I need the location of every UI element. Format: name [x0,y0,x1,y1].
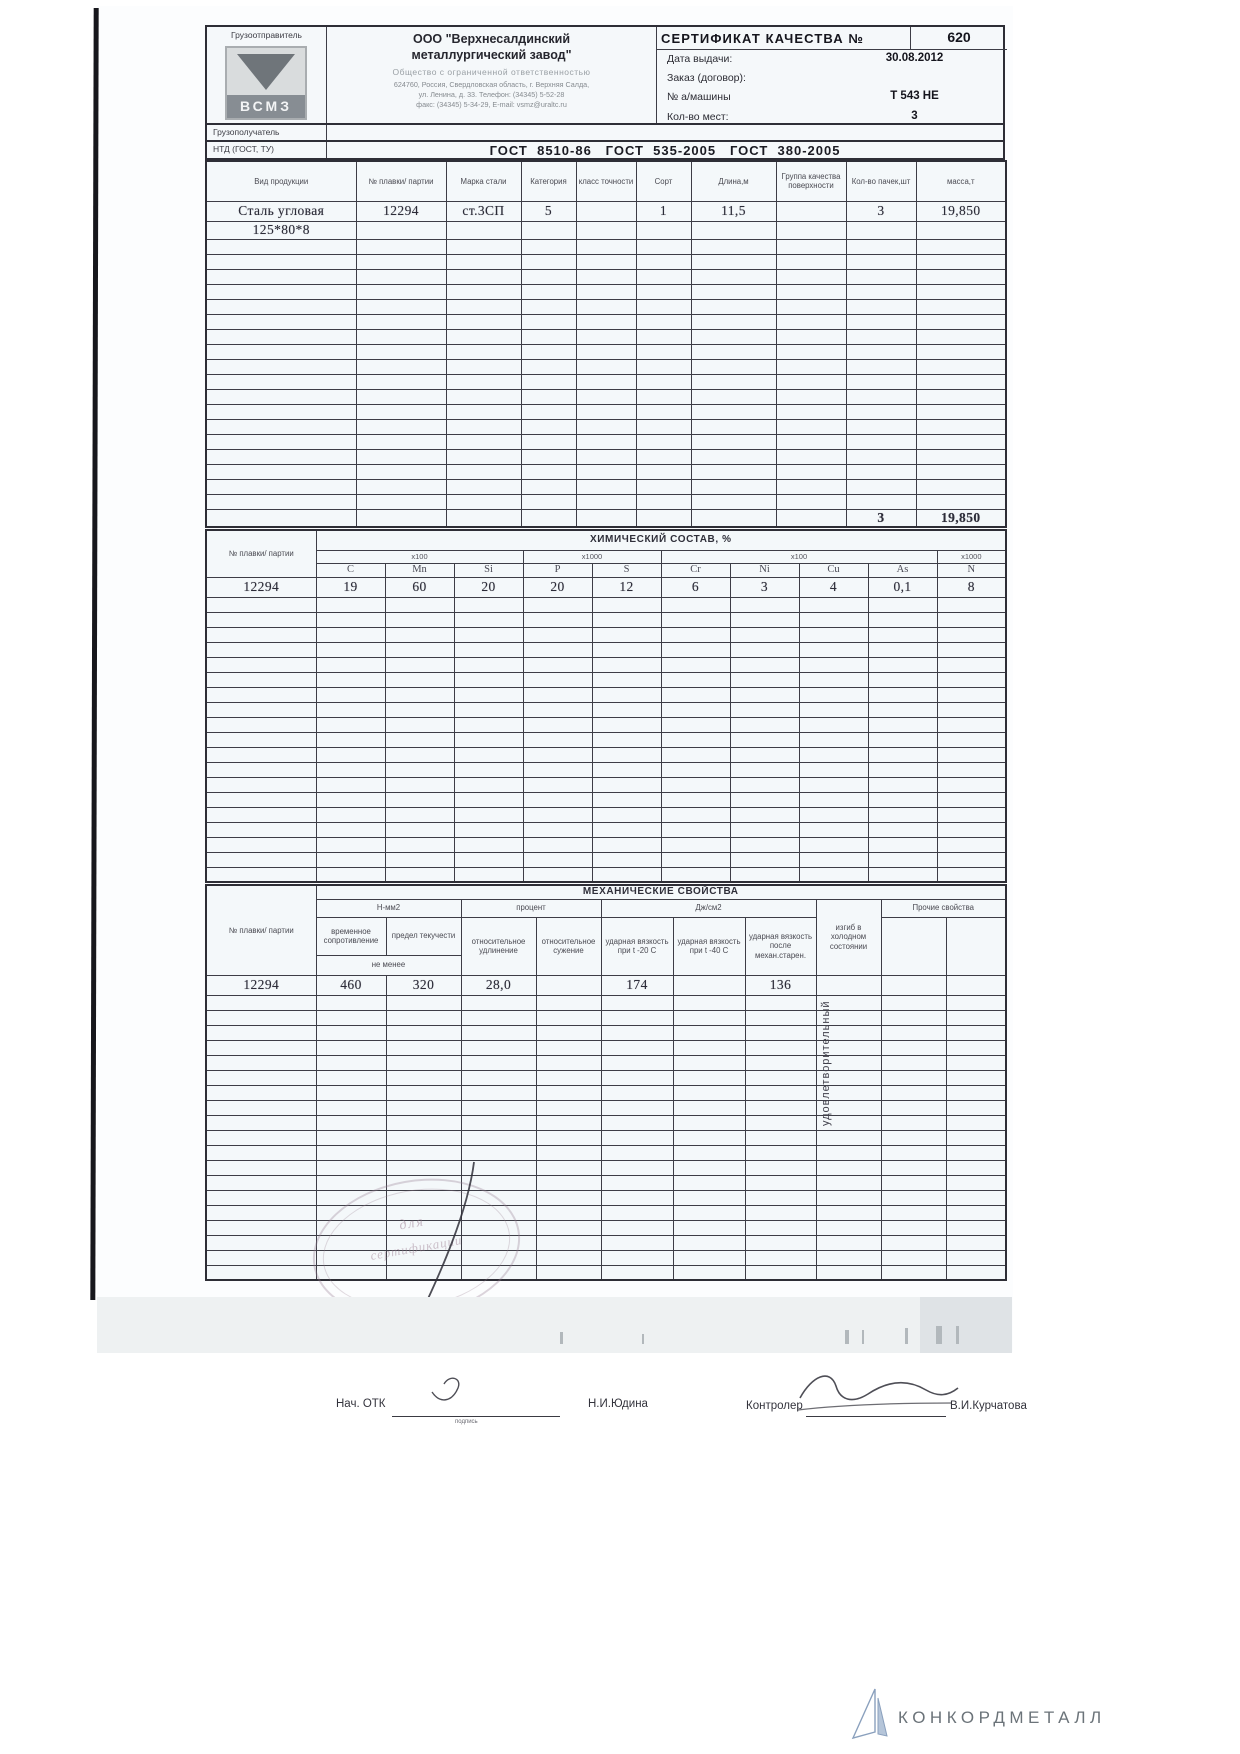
field-label: Дата выдачи: [667,53,732,65]
table-cell [316,777,385,792]
table-cell [446,434,521,449]
table-cell [385,822,454,837]
table-cell [776,419,846,434]
empty-row [206,702,1006,717]
table-cell [385,627,454,642]
table-cell [446,509,521,527]
chem-scale-row: х100 х1000 х100 х1000 [206,550,1006,563]
table-cell [673,1145,745,1160]
table-cell [316,642,385,657]
table-cell [521,269,576,284]
table-cell [946,1070,1006,1085]
empty-row [206,822,1006,837]
empty-row [206,672,1006,687]
table-cell: 12294 [356,201,446,221]
table-cell [521,404,576,419]
table-cell [601,1220,673,1235]
table-cell [937,597,1006,612]
table-cell [536,1205,601,1220]
table-cell [881,1175,946,1190]
table-cell [592,867,661,882]
table-cell [730,762,799,777]
table-cell [592,627,661,642]
not-less-than-label: не менее [316,955,461,975]
table-cell [868,792,937,807]
table-cell [937,807,1006,822]
chem-col-heat: № плавки/ партии [206,530,316,577]
otk-chief-label: Нач. ОТК [336,1398,386,1410]
table-cell [536,1025,601,1040]
scale-x1000: х1000 [937,550,1006,563]
table-cell [799,597,868,612]
table-cell [661,837,730,852]
table-cell [316,867,385,882]
table-cell [661,762,730,777]
empty-row [206,995,1006,1010]
table-cell [661,807,730,822]
table-cell [576,314,636,329]
col-elongation: относительное удлинение [461,917,536,975]
table-cell [881,1190,946,1205]
scan-mark [956,1326,959,1344]
table-cell [846,359,916,374]
table-cell [868,747,937,762]
table-cell [946,1250,1006,1265]
table-cell [601,1115,673,1130]
table-cell [356,344,446,359]
table-cell [673,1250,745,1265]
table-cell [691,509,776,527]
table-cell [446,359,521,374]
table-cell [536,1250,601,1265]
elem-As: As [868,563,937,577]
table-cell [799,822,868,837]
table-cell [868,597,937,612]
table-cell [592,762,661,777]
table-cell [206,1055,316,1070]
table-cell [673,1085,745,1100]
table-cell [661,867,730,882]
table-cell [636,374,691,389]
table-cell [523,642,592,657]
group-percent: процент [461,899,601,917]
table-cell [206,509,356,527]
mech-data-row: 1229446032028,0174136 [206,975,1006,995]
table-cell [521,434,576,449]
table-cell [937,672,1006,687]
table-cell [454,642,523,657]
col-tensile-strength: временное сопротивление [316,917,386,955]
table-cell [661,672,730,687]
table-cell [937,687,1006,702]
table-cell [454,687,523,702]
table-cell [576,419,636,434]
empty-row [206,1115,1006,1130]
table-cell [937,657,1006,672]
table-cell [673,1220,745,1235]
table-cell [521,239,576,254]
field-value: Т 543 НЕ [862,90,967,102]
table-cell [316,762,385,777]
table-cell [592,597,661,612]
table-cell [521,254,576,269]
empty-row [206,732,1006,747]
table-cell [206,642,316,657]
table-cell [673,1190,745,1205]
table-cell [601,1235,673,1250]
table-cell: 136 [745,975,816,995]
chem-elements-row: C Mn Si P S Cr Ni Cu As N [206,563,1006,577]
table-cell [730,852,799,867]
table-cell [536,1070,601,1085]
col-other-2 [946,917,1006,975]
table-cell [536,1175,601,1190]
table-cell [446,389,521,404]
table-cell [881,1115,946,1130]
table-cell [385,852,454,867]
table-cell [730,717,799,732]
table-cell [816,1250,881,1265]
table-cell [385,837,454,852]
table-cell [592,852,661,867]
table-cell [601,1175,673,1190]
table-cell [636,254,691,269]
table-cell [523,792,592,807]
table-cell [454,867,523,882]
table-cell [385,807,454,822]
table-cell [673,1055,745,1070]
table-cell [536,995,601,1010]
table-cell [356,404,446,419]
table-cell [576,434,636,449]
table-cell [937,762,1006,777]
table-cell [454,747,523,762]
table-cell [576,239,636,254]
col-other-1 [881,917,946,975]
table-cell [881,1040,946,1055]
table-cell [386,1025,461,1040]
brand-text: КОНКОРДМЕТАЛЛ [898,1708,1106,1728]
table-cell [446,329,521,344]
table-cell [661,612,730,627]
table-cell [461,1160,536,1175]
table-cell [454,822,523,837]
sail-logo-icon [846,1686,894,1742]
empty-row [206,239,1006,254]
chemical-composition-table: № плавки/ партии ХИМИЧЕСКИЙ СОСТАВ, % х1… [205,529,1007,883]
table-cell: 19,850 [916,509,1006,527]
table-cell [206,374,356,389]
table-cell [946,1235,1006,1250]
certificate-number: 620 [910,27,1007,50]
ntd-row: НТД (ГОСТ, ТУ) ГОСТ 8510-86 ГОСТ 535-200… [205,142,1005,160]
group-other-properties: Прочие свойства [881,899,1006,917]
table-cell [206,995,316,1010]
table-cell [816,1265,881,1280]
table-cell [521,314,576,329]
table-cell [636,221,691,239]
table-cell [206,612,316,627]
table-cell [673,975,745,995]
table-cell [461,1055,536,1070]
table-cell [386,1040,461,1055]
table-cell [745,1145,816,1160]
table-cell [799,837,868,852]
table-cell [523,657,592,672]
table-cell [916,434,1006,449]
table-cell [636,359,691,374]
table-cell [385,762,454,777]
table-cell [523,747,592,762]
table-cell [536,1055,601,1070]
table-cell [536,1130,601,1145]
table-cell [937,747,1006,762]
table-cell [454,672,523,687]
ntd-standards: ГОСТ 8510-86 ГОСТ 535-2005 ГОСТ 380-2005 [327,142,1003,158]
table-cell [454,717,523,732]
table-cell [673,1115,745,1130]
certificate-header: Грузоотправитель ВСМЗ ООО "Верхнесалдинс… [205,25,1005,125]
table-cell [461,995,536,1010]
empty-row [206,434,1006,449]
empty-row [206,762,1006,777]
table-cell [776,374,846,389]
controller-name: В.И.Курчатова [950,1400,1027,1412]
table-cell [206,359,356,374]
table-cell [601,1145,673,1160]
empty-row [206,1010,1006,1025]
table-cell [799,642,868,657]
table-cell [461,1085,536,1100]
table-cell [446,494,521,509]
table-cell [206,1235,316,1250]
table-cell [846,479,916,494]
table-cell [385,672,454,687]
table-cell: 174 [601,975,673,995]
empty-row [206,657,1006,672]
table-cell [816,1205,881,1220]
table-cell [730,807,799,822]
table-cell [673,1010,745,1025]
table-cell [776,284,846,299]
table-cell [776,201,846,221]
table-cell [206,627,316,642]
table-cell [576,254,636,269]
col-accuracy-class: класс точности [576,161,636,201]
company-name-line2: металлургический завод" [411,48,571,62]
table-cell [661,792,730,807]
table-cell [916,221,1006,239]
table-cell [523,627,592,642]
table-cell [206,672,316,687]
table-cell [946,1010,1006,1025]
table-cell [745,1265,816,1280]
table-cell [937,777,1006,792]
table-cell [776,269,846,284]
shipper-label: Грузоотправитель [207,27,326,40]
table-cell [946,1055,1006,1070]
table-cell [592,657,661,672]
table-cell [745,1175,816,1190]
empty-row [206,1040,1006,1055]
table-cell [592,777,661,792]
table-cell [776,344,846,359]
table-cell [601,1070,673,1085]
table-cell [316,995,386,1010]
certificate-title-row: СЕРТИФИКАТ КАЧЕСТВА № 620 [657,27,1007,50]
empty-row [206,404,1006,419]
empty-row [206,254,1006,269]
table-cell [691,449,776,464]
table-cell [206,747,316,762]
table-cell [846,221,916,239]
table-cell [730,792,799,807]
table-cell [356,479,446,494]
table-cell [673,1070,745,1085]
table-cell [316,1040,386,1055]
table-cell [661,747,730,762]
table-cell [776,389,846,404]
table-cell [446,314,521,329]
table-cell [356,221,446,239]
table-cell [916,239,1006,254]
empty-row [206,389,1006,404]
table-cell [730,867,799,882]
table-cell [206,1010,316,1025]
empty-row [206,747,1006,762]
table-cell [523,762,592,777]
table-cell [946,1145,1006,1160]
table-cell [868,762,937,777]
table-cell [868,732,937,747]
table-cell [316,657,385,672]
table-cell [446,374,521,389]
empty-row [206,1100,1006,1115]
col-reduction: относительное сужение [536,917,601,975]
table-cell [661,702,730,717]
table-cell [730,837,799,852]
table-cell [316,837,385,852]
table-cell [454,627,523,642]
table-cell [730,597,799,612]
table-cell [592,717,661,732]
table-cell [592,642,661,657]
table-cell [730,687,799,702]
table-cell [523,852,592,867]
table-cell [946,1190,1006,1205]
table-cell [691,464,776,479]
table-cell [745,1190,816,1205]
empty-row [206,314,1006,329]
table-cell [356,284,446,299]
table-cell [661,852,730,867]
table-cell [454,807,523,822]
table-cell [576,269,636,284]
empty-row [206,1160,1006,1175]
table-cell [601,1025,673,1040]
col-impact-minus20: ударная вязкость при t -20 С [601,917,673,975]
table-cell [386,1145,461,1160]
table-cell [592,792,661,807]
table-cell [745,995,816,1010]
col-product-type: Вид продукции [206,161,356,201]
table-cell [523,687,592,702]
empty-row [206,597,1006,612]
table-cell: 460 [316,975,386,995]
table-cell [316,597,385,612]
table-cell [461,1115,536,1130]
table-cell [461,1145,536,1160]
empty-row [206,494,1006,509]
table-cell [937,612,1006,627]
table-cell [523,867,592,882]
table-cell [206,464,356,479]
table-cell [536,1235,601,1250]
table-cell [673,1100,745,1115]
empty-row [206,344,1006,359]
table-cell [454,732,523,747]
table-cell [916,344,1006,359]
table-cell [316,1055,386,1070]
table-cell [206,777,316,792]
col-mass: масса,т [916,161,1006,201]
elem-Si: Si [454,563,523,577]
table-cell [799,627,868,642]
table-cell [316,1100,386,1115]
table-cell [446,464,521,479]
field-issue-date: Дата выдачи: 30.08.2012 [657,50,1007,69]
empty-row [206,1130,1006,1145]
table-cell [206,1100,316,1115]
table-cell [206,1130,316,1145]
empty-row [206,717,1006,732]
table-cell [730,627,799,642]
table-cell [523,717,592,732]
table-cell [776,509,846,527]
table-cell [521,374,576,389]
table-cell [385,792,454,807]
table-cell [816,1235,881,1250]
table-cell [776,221,846,239]
table-cell [691,344,776,359]
table-cell [916,254,1006,269]
table-cell [937,732,1006,747]
table-cell [937,837,1006,852]
table-cell [592,807,661,822]
table-cell [799,867,868,882]
scale-x100: х100 [661,550,937,563]
table-cell [673,1205,745,1220]
table-cell [661,627,730,642]
table-cell [636,479,691,494]
table-cell [536,1100,601,1115]
table-cell: 12 [592,577,661,597]
empty-row [206,419,1006,434]
table-cell [454,792,523,807]
table-cell [881,1160,946,1175]
table-cell [946,1265,1006,1280]
table-cell [576,201,636,221]
col-sort: Сорт [636,161,691,201]
table-cell [776,359,846,374]
table-cell [206,1070,316,1085]
table-cell [745,1025,816,1040]
empty-row [206,777,1006,792]
col-category: Категория [521,161,576,201]
table-cell [846,299,916,314]
vsmz-logo: ВСМЗ [225,46,307,120]
table-cell [386,1055,461,1070]
